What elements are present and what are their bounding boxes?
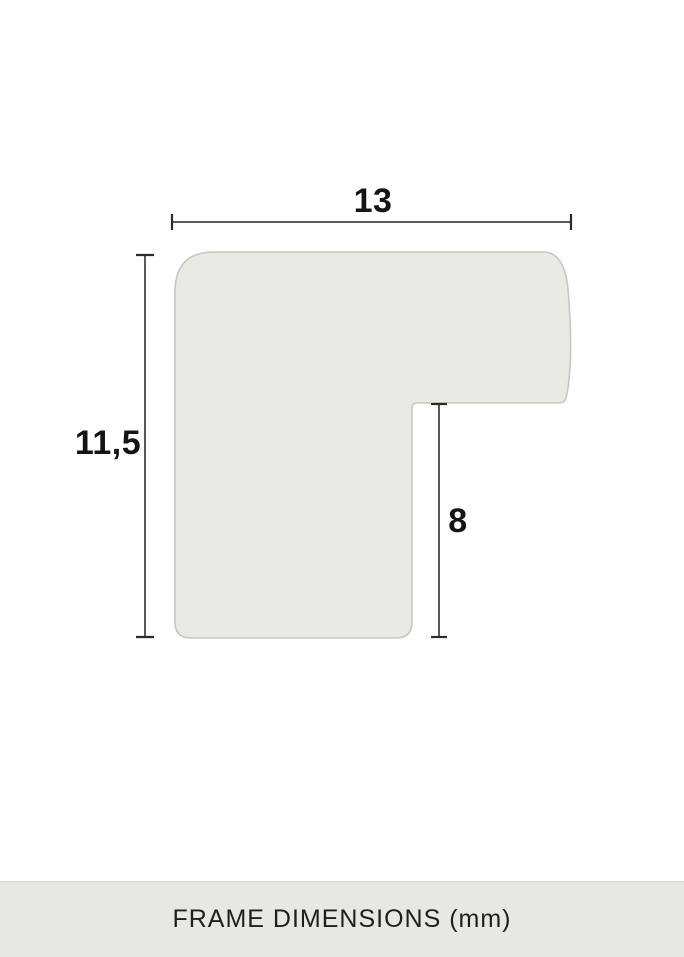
width-dimension-label: 13 bbox=[354, 184, 393, 218]
depth-dimension bbox=[431, 404, 447, 637]
depth-dimension-label: 8 bbox=[448, 504, 467, 538]
footer-caption: FRAME DIMENSIONS (mm) bbox=[172, 905, 511, 934]
frame-profile-shape bbox=[175, 252, 571, 638]
height-dimension-label: 11,5 bbox=[75, 426, 141, 460]
footer-bar: FRAME DIMENSIONS (mm) bbox=[0, 881, 684, 957]
frame-profile-page: 13 11,5 8 FRAME DIMENSIONS (mm) bbox=[0, 0, 684, 957]
